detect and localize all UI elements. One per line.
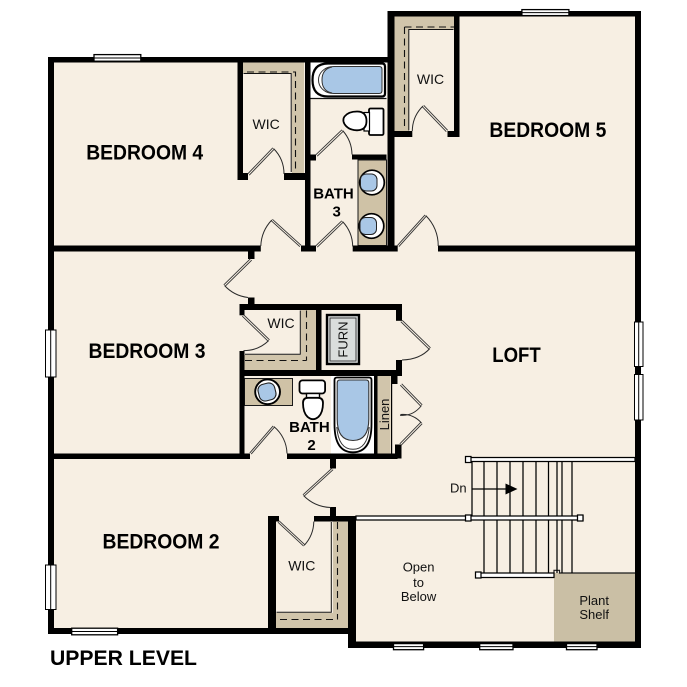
svg-text:UPPER LEVEL: UPPER LEVEL [50, 647, 197, 670]
svg-text:PlantShelf: PlantShelf [579, 593, 609, 622]
svg-text:Dn: Dn [450, 481, 467, 496]
svg-text:WIC: WIC [288, 558, 315, 574]
svg-text:BEDROOM 3: BEDROOM 3 [89, 340, 206, 363]
svg-text:Linen: Linen [377, 399, 392, 431]
svg-text:BEDROOM 4: BEDROOM 4 [86, 142, 203, 165]
svg-text:BEDROOM 2: BEDROOM 2 [103, 531, 220, 554]
svg-text:WIC: WIC [417, 71, 444, 87]
svg-text:LOFT: LOFT [492, 344, 541, 367]
svg-text:WIC: WIC [252, 116, 279, 132]
svg-text:FURN: FURN [336, 321, 351, 357]
svg-text:BEDROOM 5: BEDROOM 5 [489, 119, 606, 142]
svg-text:WIC: WIC [267, 315, 294, 331]
